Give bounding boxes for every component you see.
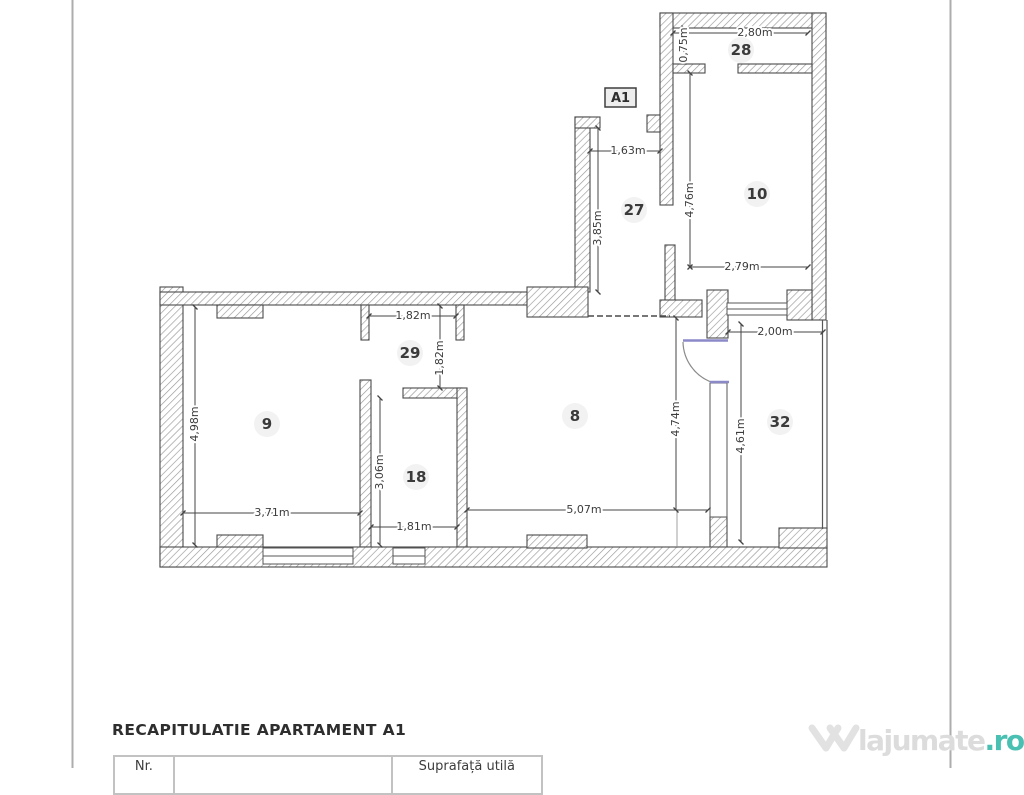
lajumate-logo-icon [806, 720, 862, 760]
dim-room32-width: 2,00m [728, 325, 823, 338]
wall-segment [787, 290, 812, 320]
scanned-floor-plan-page: { "plan": { "unit_label": "A1", "rooms":… [0, 0, 1024, 768]
wall-segment [738, 64, 812, 73]
wall-segment [160, 287, 183, 567]
dim-label: 3,71m [254, 506, 289, 519]
dim-label: 3,85m [591, 210, 604, 245]
dim-label: 4,61m [734, 418, 747, 453]
unit-label-text: A1 [611, 91, 630, 106]
recap-table: Nr. Suprafață utilă [113, 755, 543, 795]
wall-segment [361, 305, 369, 340]
wall-segment [456, 305, 464, 340]
dim-label: 1,82m [395, 309, 430, 322]
header-cell-suprafata-utila: Suprafață utilă [391, 757, 541, 793]
wall-segment [160, 292, 530, 305]
room-label-29: 29 [400, 344, 421, 362]
dim-room18-height: 3,06m [373, 398, 386, 545]
room-label-18: 18 [406, 468, 427, 486]
header-cell-nr: Nr. [115, 757, 173, 793]
wall-segment [403, 388, 462, 398]
wall-segment [660, 13, 673, 205]
wall-segment [160, 547, 827, 567]
room-label-10: 10 [747, 185, 768, 203]
dim-room28-height: 0,75m [677, 27, 690, 62]
wall-segment [707, 290, 728, 338]
dim-label: 2,80m [737, 26, 772, 39]
floor-plan: 2,80m 0,75m 4,76m 2,79m 1,63m 3,85m 1,82… [0, 0, 1024, 768]
shaft-partition [710, 383, 727, 517]
wall-segment [660, 300, 702, 317]
dim-label: 5,07m [566, 503, 601, 516]
room-label-28: 28 [731, 41, 752, 59]
dim-room27-height: 3,85m [591, 128, 604, 292]
dim-label: 1,82m [433, 340, 446, 375]
dim-label: 1,81m [396, 520, 431, 533]
dim-label: 3,06m [373, 454, 386, 489]
dim-room8-height: 4,74m [669, 318, 682, 510]
watermark-tld: .ro [984, 724, 1023, 757]
room-label-9: 9 [262, 415, 272, 433]
door-swing [683, 341, 729, 383]
room-label-32: 32 [770, 413, 791, 431]
dim-room29-width: 1,82m [369, 309, 456, 322]
watermark-text: lajumate.ro [858, 727, 1024, 755]
wall-segment [665, 245, 675, 302]
wall-segment [710, 517, 727, 548]
header-cell-room-name [173, 757, 391, 793]
wall-segment [457, 388, 467, 547]
dim-label: 2,79m [724, 260, 759, 273]
dim-room29-height: 1,82m [433, 306, 446, 388]
wall-segment [673, 64, 705, 73]
dim-label: 1,63m [610, 144, 645, 157]
watermark: lajumate.ro [806, 716, 1024, 768]
dim-label: 4,76m [683, 182, 696, 217]
wall-segment [575, 117, 590, 292]
door-arc [683, 342, 711, 382]
wall-segment [527, 287, 588, 317]
dim-room10-width: 2,79m [690, 260, 808, 273]
dim-room18-width: 1,81m [371, 520, 457, 533]
wall-segment [217, 305, 263, 318]
dim-label: 4,98m [188, 406, 201, 441]
wall-segment [360, 380, 371, 547]
dim-room32-height: 4,61m [734, 324, 747, 542]
wall-segment [812, 13, 826, 320]
dim-label: 0,75m [677, 27, 690, 62]
dim-room8-width: 5,07m [467, 503, 708, 516]
watermark-brand: lajumate [858, 724, 984, 757]
room-label-8: 8 [570, 407, 580, 425]
dim-label: 2,00m [757, 325, 792, 338]
room-label-27: 27 [624, 201, 645, 219]
wall-segment [527, 535, 587, 548]
wall-segment [575, 117, 600, 128]
unit-label: A1 [605, 88, 636, 107]
dim-label: 4,74m [669, 401, 682, 436]
recap-heading: RECAPITULATIE APARTAMENT A1 [112, 721, 406, 739]
wall-segment [217, 535, 263, 547]
wall-segment [779, 528, 827, 548]
dim-room27-width: 1,63m [590, 144, 660, 157]
dim-room10-height: 4,76m [683, 73, 696, 267]
dim-room9-height: 4,98m [188, 307, 201, 545]
dim-room9-width: 3,71m [183, 506, 360, 519]
wall-segment [647, 115, 660, 132]
